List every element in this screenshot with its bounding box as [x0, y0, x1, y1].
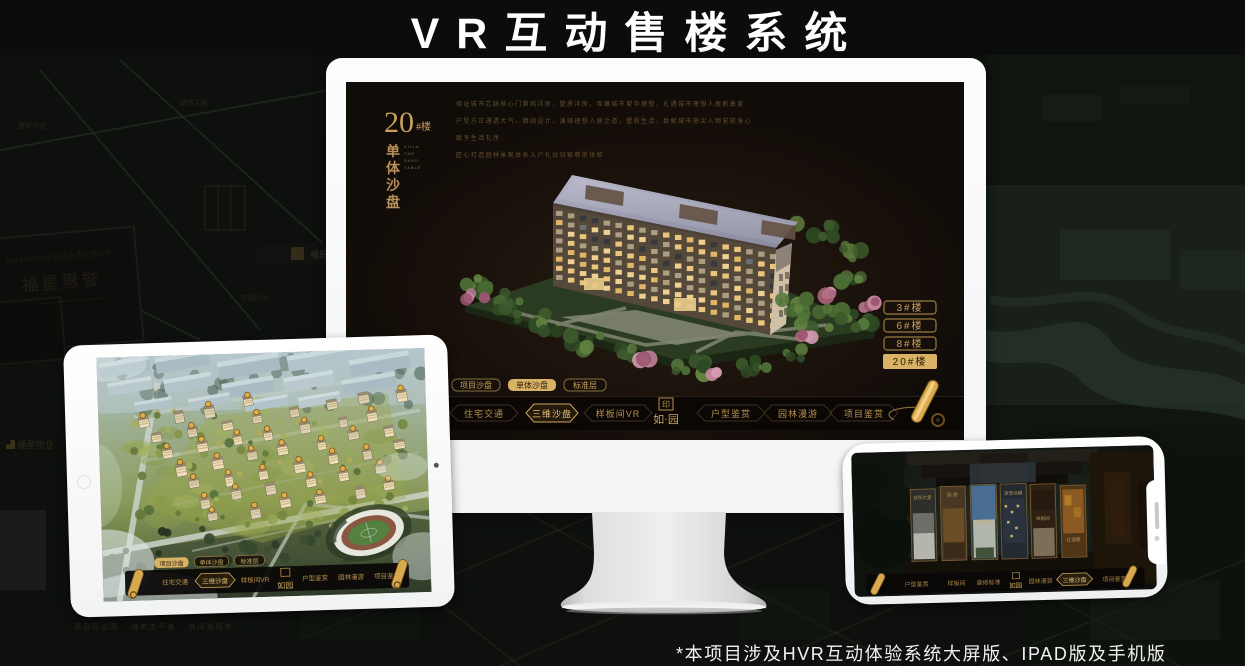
svg-text:T A B L E: T A B L E: [404, 165, 421, 170]
svg-text:项目沙盘: 项目沙盘: [460, 380, 492, 390]
svg-text:城市主脉: 城市主脉: [180, 98, 208, 107]
svg-text:标准层: 标准层: [573, 380, 597, 390]
svg-text:样板间VR: 样板间VR: [596, 408, 641, 419]
svg-text:三维沙盘: 三维沙盘: [532, 408, 572, 419]
svg-text:项目鉴赏: 项目鉴赏: [844, 408, 884, 419]
svg-text:东湖片区: 东湖片区: [240, 293, 268, 302]
svg-text:户型鉴赏: 户型鉴赏: [711, 408, 751, 419]
svg-text:赋予生活礼序: 赋予生活礼序: [456, 134, 500, 142]
svg-text:晋安大道: 晋安大道: [18, 121, 46, 130]
svg-text:如园: 如园: [1009, 581, 1022, 590]
svg-text:单体沙盘: 单体沙盘: [386, 143, 401, 210]
svg-text:单体沙盘: 单体沙盘: [516, 380, 548, 390]
svg-text:V I L L A: V I L L A: [404, 144, 419, 149]
svg-text:住宅交通: 住宅交通: [464, 408, 504, 419]
svg-text:T H E: T H E: [404, 151, 414, 156]
svg-text:匠心打造园林景观体系入户礼仪归家尊崇体验: 匠心打造园林景观体系入户礼仪归家尊崇体验: [456, 151, 604, 159]
svg-text:户型方正通透大气，朗阔设计，演绎理想人居之道，墅质生活，致献: 户型方正通透大气，朗阔设计，演绎理想人居之道，墅质生活，致献城市塔尖人物安放身心: [456, 117, 752, 125]
svg-text:如园: 如园: [277, 580, 293, 590]
svg-text:20#楼: 20#楼: [893, 355, 928, 368]
svg-text:6#楼: 6#楼: [896, 319, 923, 332]
svg-text:择址城市芯脉核心门第纯洋房，墅质洋房，席藏城市繁华理想，礼遇: 择址城市芯脉核心门第纯洋房，墅质洋房，席藏城市繁华理想，礼遇城市理想人居新高度: [456, 100, 745, 108]
svg-text:如·园: 如·园: [653, 412, 679, 426]
svg-text:3#楼: 3#楼: [896, 301, 923, 314]
svg-text:8#楼: 8#楼: [896, 337, 923, 350]
svg-text:园林漫游: 园林漫游: [778, 408, 818, 419]
svg-text:印: 印: [662, 400, 670, 409]
svg-text:#楼: #楼: [416, 120, 431, 133]
svg-text:S A N D: S A N D: [404, 158, 418, 163]
svg-text:20: 20: [384, 106, 414, 139]
